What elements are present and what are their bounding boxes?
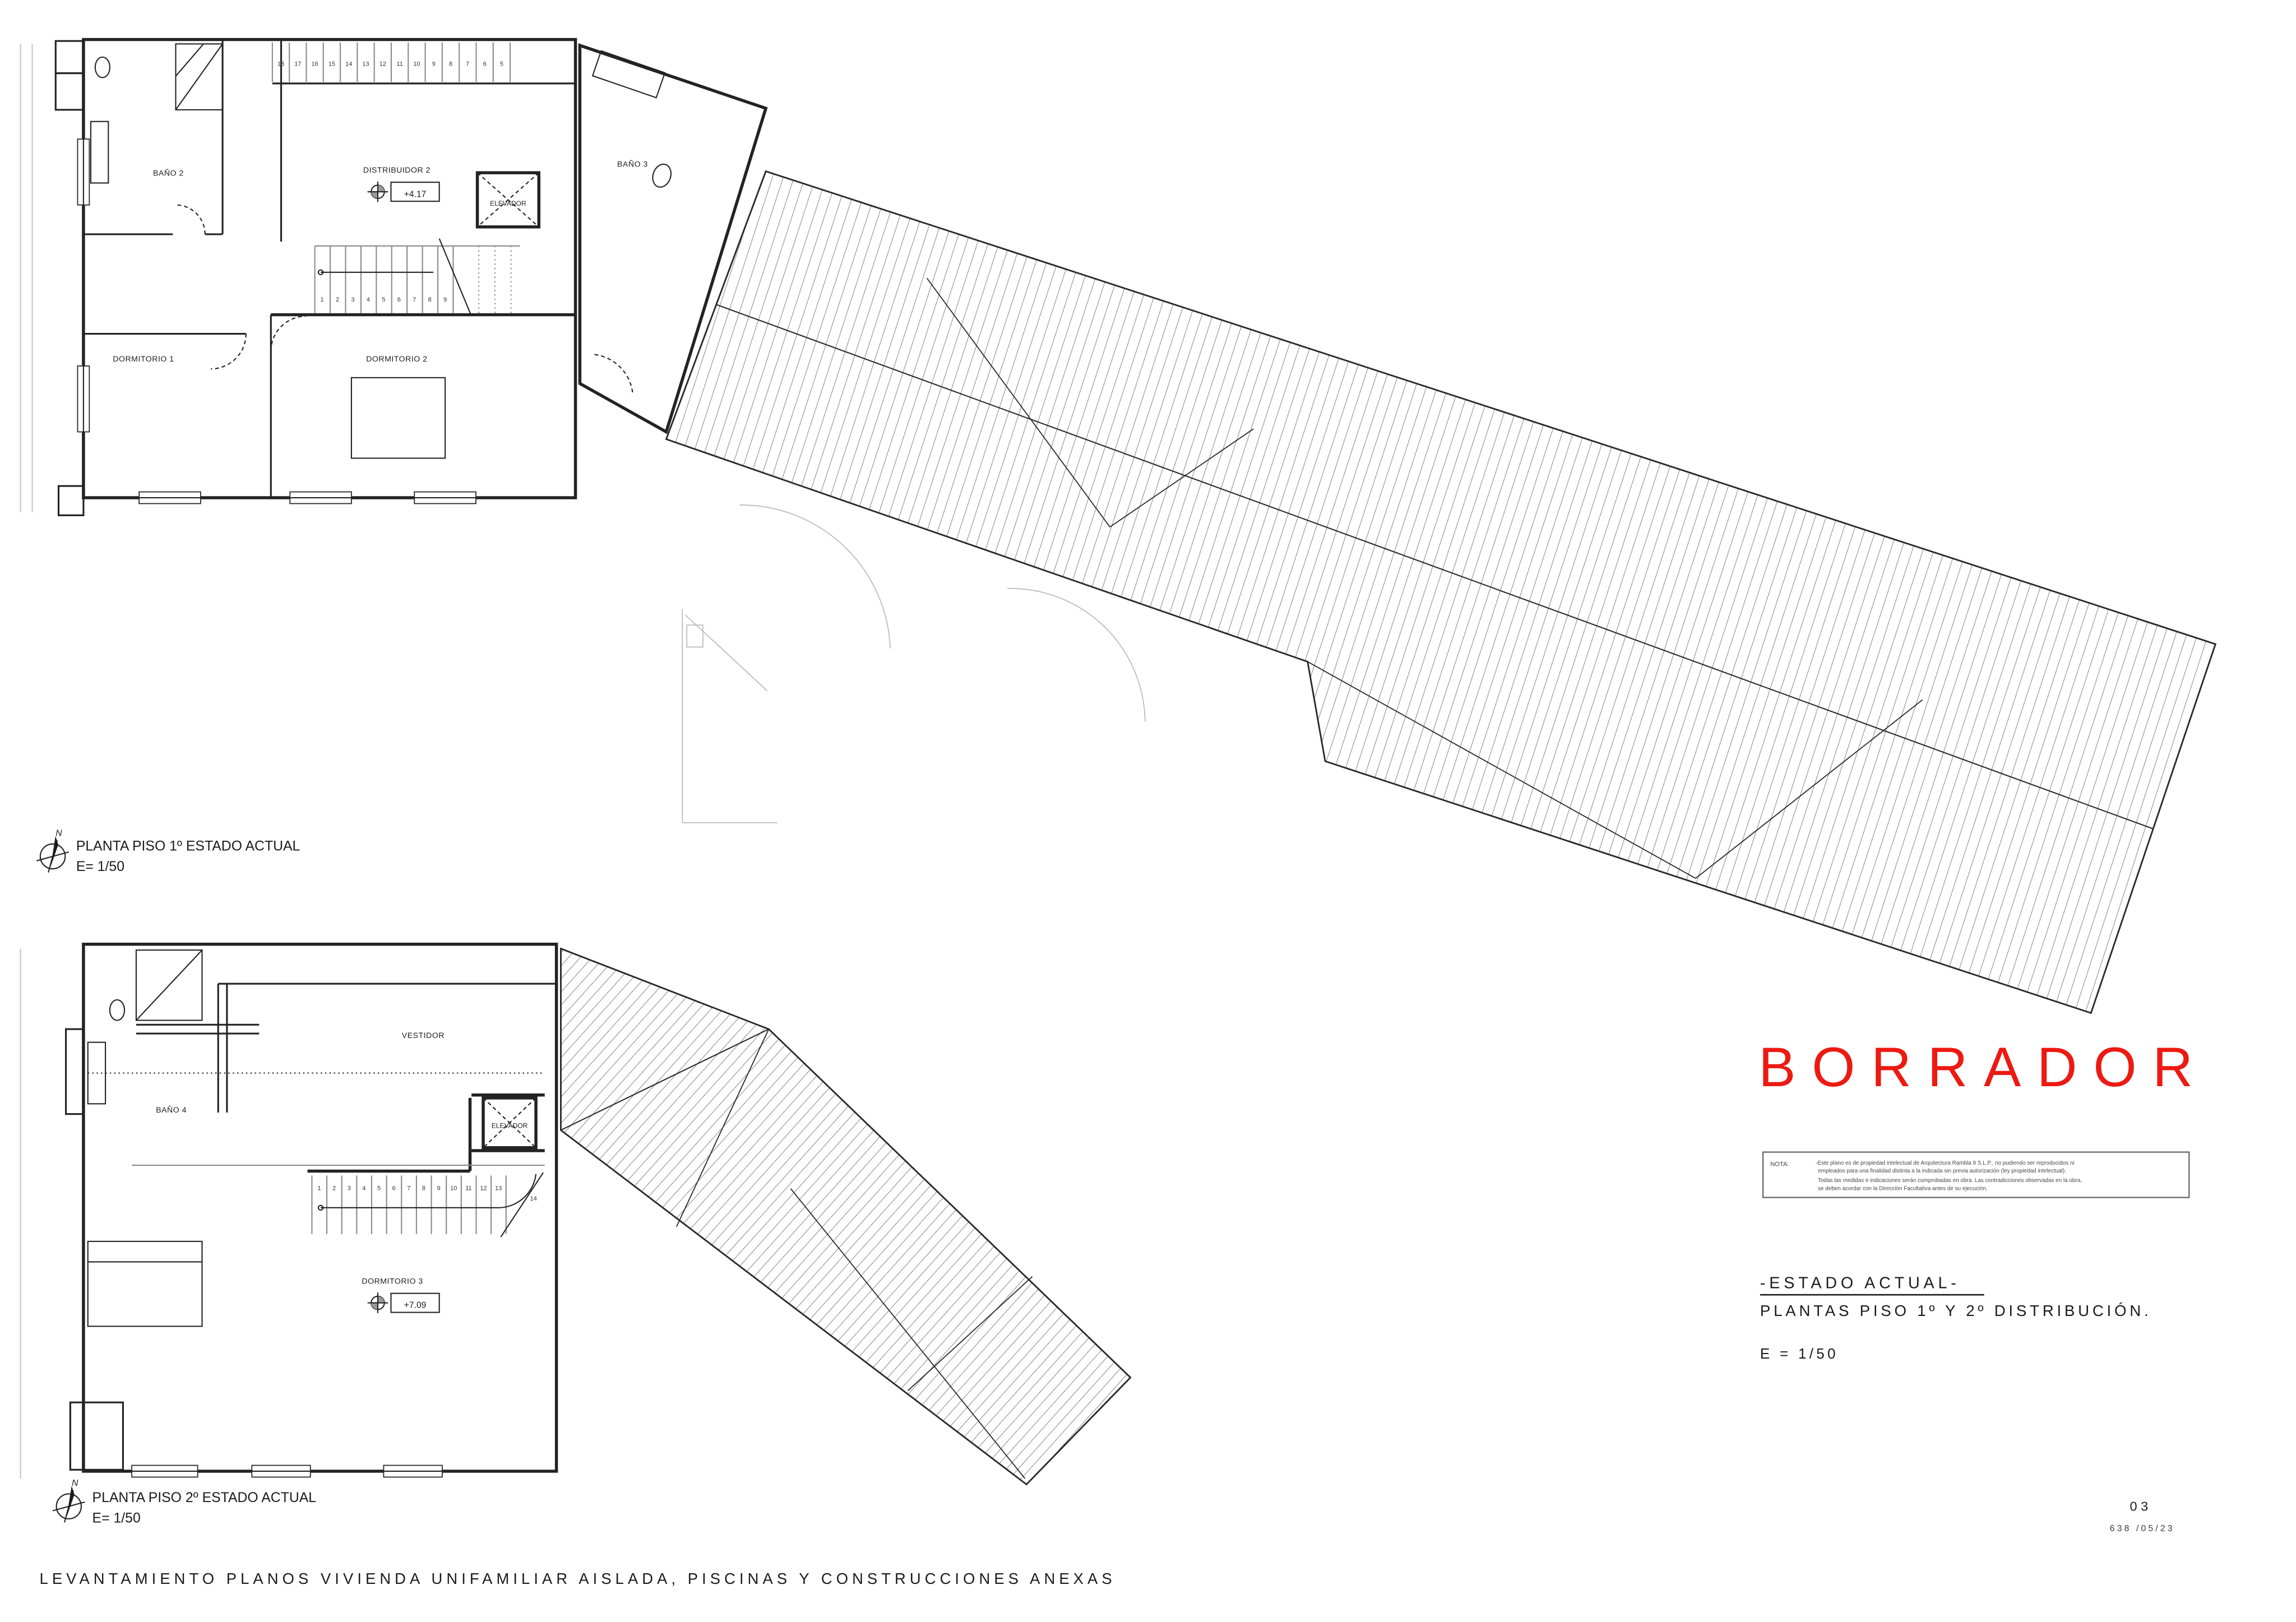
status-title: -ESTADO ACTUAL- <box>1760 1274 1960 1292</box>
stair-number: 9 <box>443 296 447 303</box>
stair-number: 13 <box>495 1185 502 1192</box>
stair-number: 2 <box>332 1185 336 1192</box>
project-code: 638 /05/23 <box>2110 1524 2175 1533</box>
stair-number: 14 <box>345 61 352 68</box>
stair-number: 5 <box>500 61 503 68</box>
site-boundary-lines <box>21 44 33 1479</box>
stair-number: 10 <box>413 61 420 68</box>
stair-number: 9 <box>432 61 436 68</box>
stair-number: 15 <box>328 61 335 68</box>
stair-number: 4 <box>362 1185 365 1192</box>
plan2-level-label: +7.09 <box>404 1301 427 1310</box>
nota-line: empleados para una finalidad distinta a … <box>1818 1168 2066 1174</box>
nota-box: NOTA: -Este plano es de propiedad intele… <box>1763 1152 2189 1198</box>
stair-number: 12 <box>480 1185 487 1192</box>
stair-number: 9 <box>437 1185 441 1192</box>
plan2-caption-scale: E= 1/50 <box>92 1510 141 1526</box>
plan1-room-dormitorio1: DORMITORIO 1 <box>113 354 174 363</box>
plan2-stair-numbers: 12345678910111213 <box>317 1185 502 1192</box>
floor-plan-canvas: 18171615141312111098765 123456789 <box>0 0 2296 1622</box>
stair-number: 1 <box>317 1185 321 1192</box>
stair-number: 8 <box>422 1185 425 1192</box>
stair-number: 17 <box>294 61 301 68</box>
stair-number: 5 <box>377 1185 381 1192</box>
stair-number: 6 <box>392 1185 396 1192</box>
plan2-north-label: N <box>72 1479 78 1488</box>
stair-number: 12 <box>379 61 386 68</box>
plan1-fixtures <box>91 44 674 458</box>
plan1-caption-title: PLANTA PISO 1º ESTADO ACTUAL <box>76 839 300 854</box>
plan1-room-bano3: BAÑO 3 <box>617 160 648 169</box>
nota-label: NOTA: <box>1770 1161 1789 1167</box>
plan1-room-elevador: ELEVADOR <box>490 200 526 207</box>
plan1-mid-stair: 123456789 <box>315 239 511 316</box>
plan2-caption-title: PLANTA PISO 2º ESTADO ACTUAL <box>92 1490 317 1505</box>
stair-number: 10 <box>450 1185 457 1192</box>
stair-number: 4 <box>367 296 370 303</box>
draft-watermark: BORRADOR <box>1758 1036 2209 1099</box>
plan1-room-bano2: BAÑO 2 <box>153 168 184 177</box>
nota-line: se deben acordar con la Dirección Facult… <box>1818 1185 1987 1192</box>
roof-plane-lower <box>561 949 1130 1485</box>
stair-number: 3 <box>348 1185 351 1192</box>
plan1-room-distribuidor2: DISTRIBUIDOR 2 <box>363 165 430 174</box>
stair-number: 5 <box>382 296 385 303</box>
stair-number: 8 <box>449 61 452 68</box>
plan2-windows <box>132 1466 442 1477</box>
stair-number: 6 <box>397 296 401 303</box>
nota-line: Todas las medidas e indicaciones serán c… <box>1818 1178 2082 1184</box>
stair-number: 1 <box>321 296 324 303</box>
drawing-title: LEVANTAMIENTO PLANOS VIVIENDA UNIFAMILIA… <box>40 1570 1116 1587</box>
plan1-top-stair-numbers: 18171615141312111098765 <box>277 61 503 68</box>
plan2-level-marker: +7.09 <box>368 1292 439 1313</box>
plan2-room-vestidor: VESTIDOR <box>402 1031 445 1040</box>
nota-line: -Este plano es de propiedad intelectual … <box>1816 1160 2074 1166</box>
plan2-stair: 12345678910111213 14 <box>132 1165 545 1237</box>
plan2-stair-winder-number: 14 <box>530 1195 537 1202</box>
plan1-room-dormitorio2: DORMITORIO 2 <box>366 354 427 363</box>
stair-number: 7 <box>413 296 416 303</box>
plan1-top-stair: 18171615141312111098765 <box>272 43 510 82</box>
plan1-caption: N PLANTA PISO 1º ESTADO ACTUAL E= 1/50 <box>36 828 300 874</box>
stair-number: 6 <box>483 61 487 68</box>
stair-number: 8 <box>428 296 432 303</box>
plan1-caption-scale: E= 1/50 <box>76 859 124 874</box>
plan2-drawing: 12345678910111213 14 +7.09 <box>66 944 557 1477</box>
roof-plane-upper <box>666 172 2216 1013</box>
plan2-room-elevador: ELEVADOR <box>492 1122 528 1129</box>
stair-number: 7 <box>407 1185 410 1192</box>
plan1-north-label: N <box>55 828 62 838</box>
plan1-level-label: +4.17 <box>404 189 427 199</box>
sheet-number: 03 <box>2130 1499 2151 1513</box>
plan2-room-bano4: BAÑO 4 <box>156 1105 187 1114</box>
plan1-drawing: 18171615141312111098765 123456789 <box>55 40 766 516</box>
sheet-subtitle: PLANTAS PISO 1º Y 2º DISTRIBUCIÓN. <box>1760 1302 2152 1319</box>
title-block: BORRADOR NOTA: -Este plano es de propied… <box>1758 1036 2209 1533</box>
stair-number: 3 <box>351 296 354 303</box>
stair-number: 16 <box>312 61 318 68</box>
stair-number: 18 <box>277 61 284 68</box>
plan2-fixtures <box>88 1000 202 1326</box>
scale-label: E = 1/50 <box>1760 1345 1839 1362</box>
plan1-level-marker: +4.17 <box>368 182 439 202</box>
plan1-mid-stair-numbers: 123456789 <box>321 296 447 303</box>
stair-number: 11 <box>465 1185 471 1192</box>
stair-number: 11 <box>396 61 402 68</box>
plan2-caption: N PLANTA PISO 2º ESTADO ACTUAL E= 1/50 <box>53 1479 316 1526</box>
plan2-room-dormitorio3: DORMITORIO 3 <box>362 1277 423 1286</box>
stair-number: 13 <box>362 61 369 68</box>
stair-number: 7 <box>466 61 469 68</box>
drawing-sheet: 18171615141312111098765 123456789 <box>0 0 2296 1622</box>
stair-number: 2 <box>336 296 339 303</box>
